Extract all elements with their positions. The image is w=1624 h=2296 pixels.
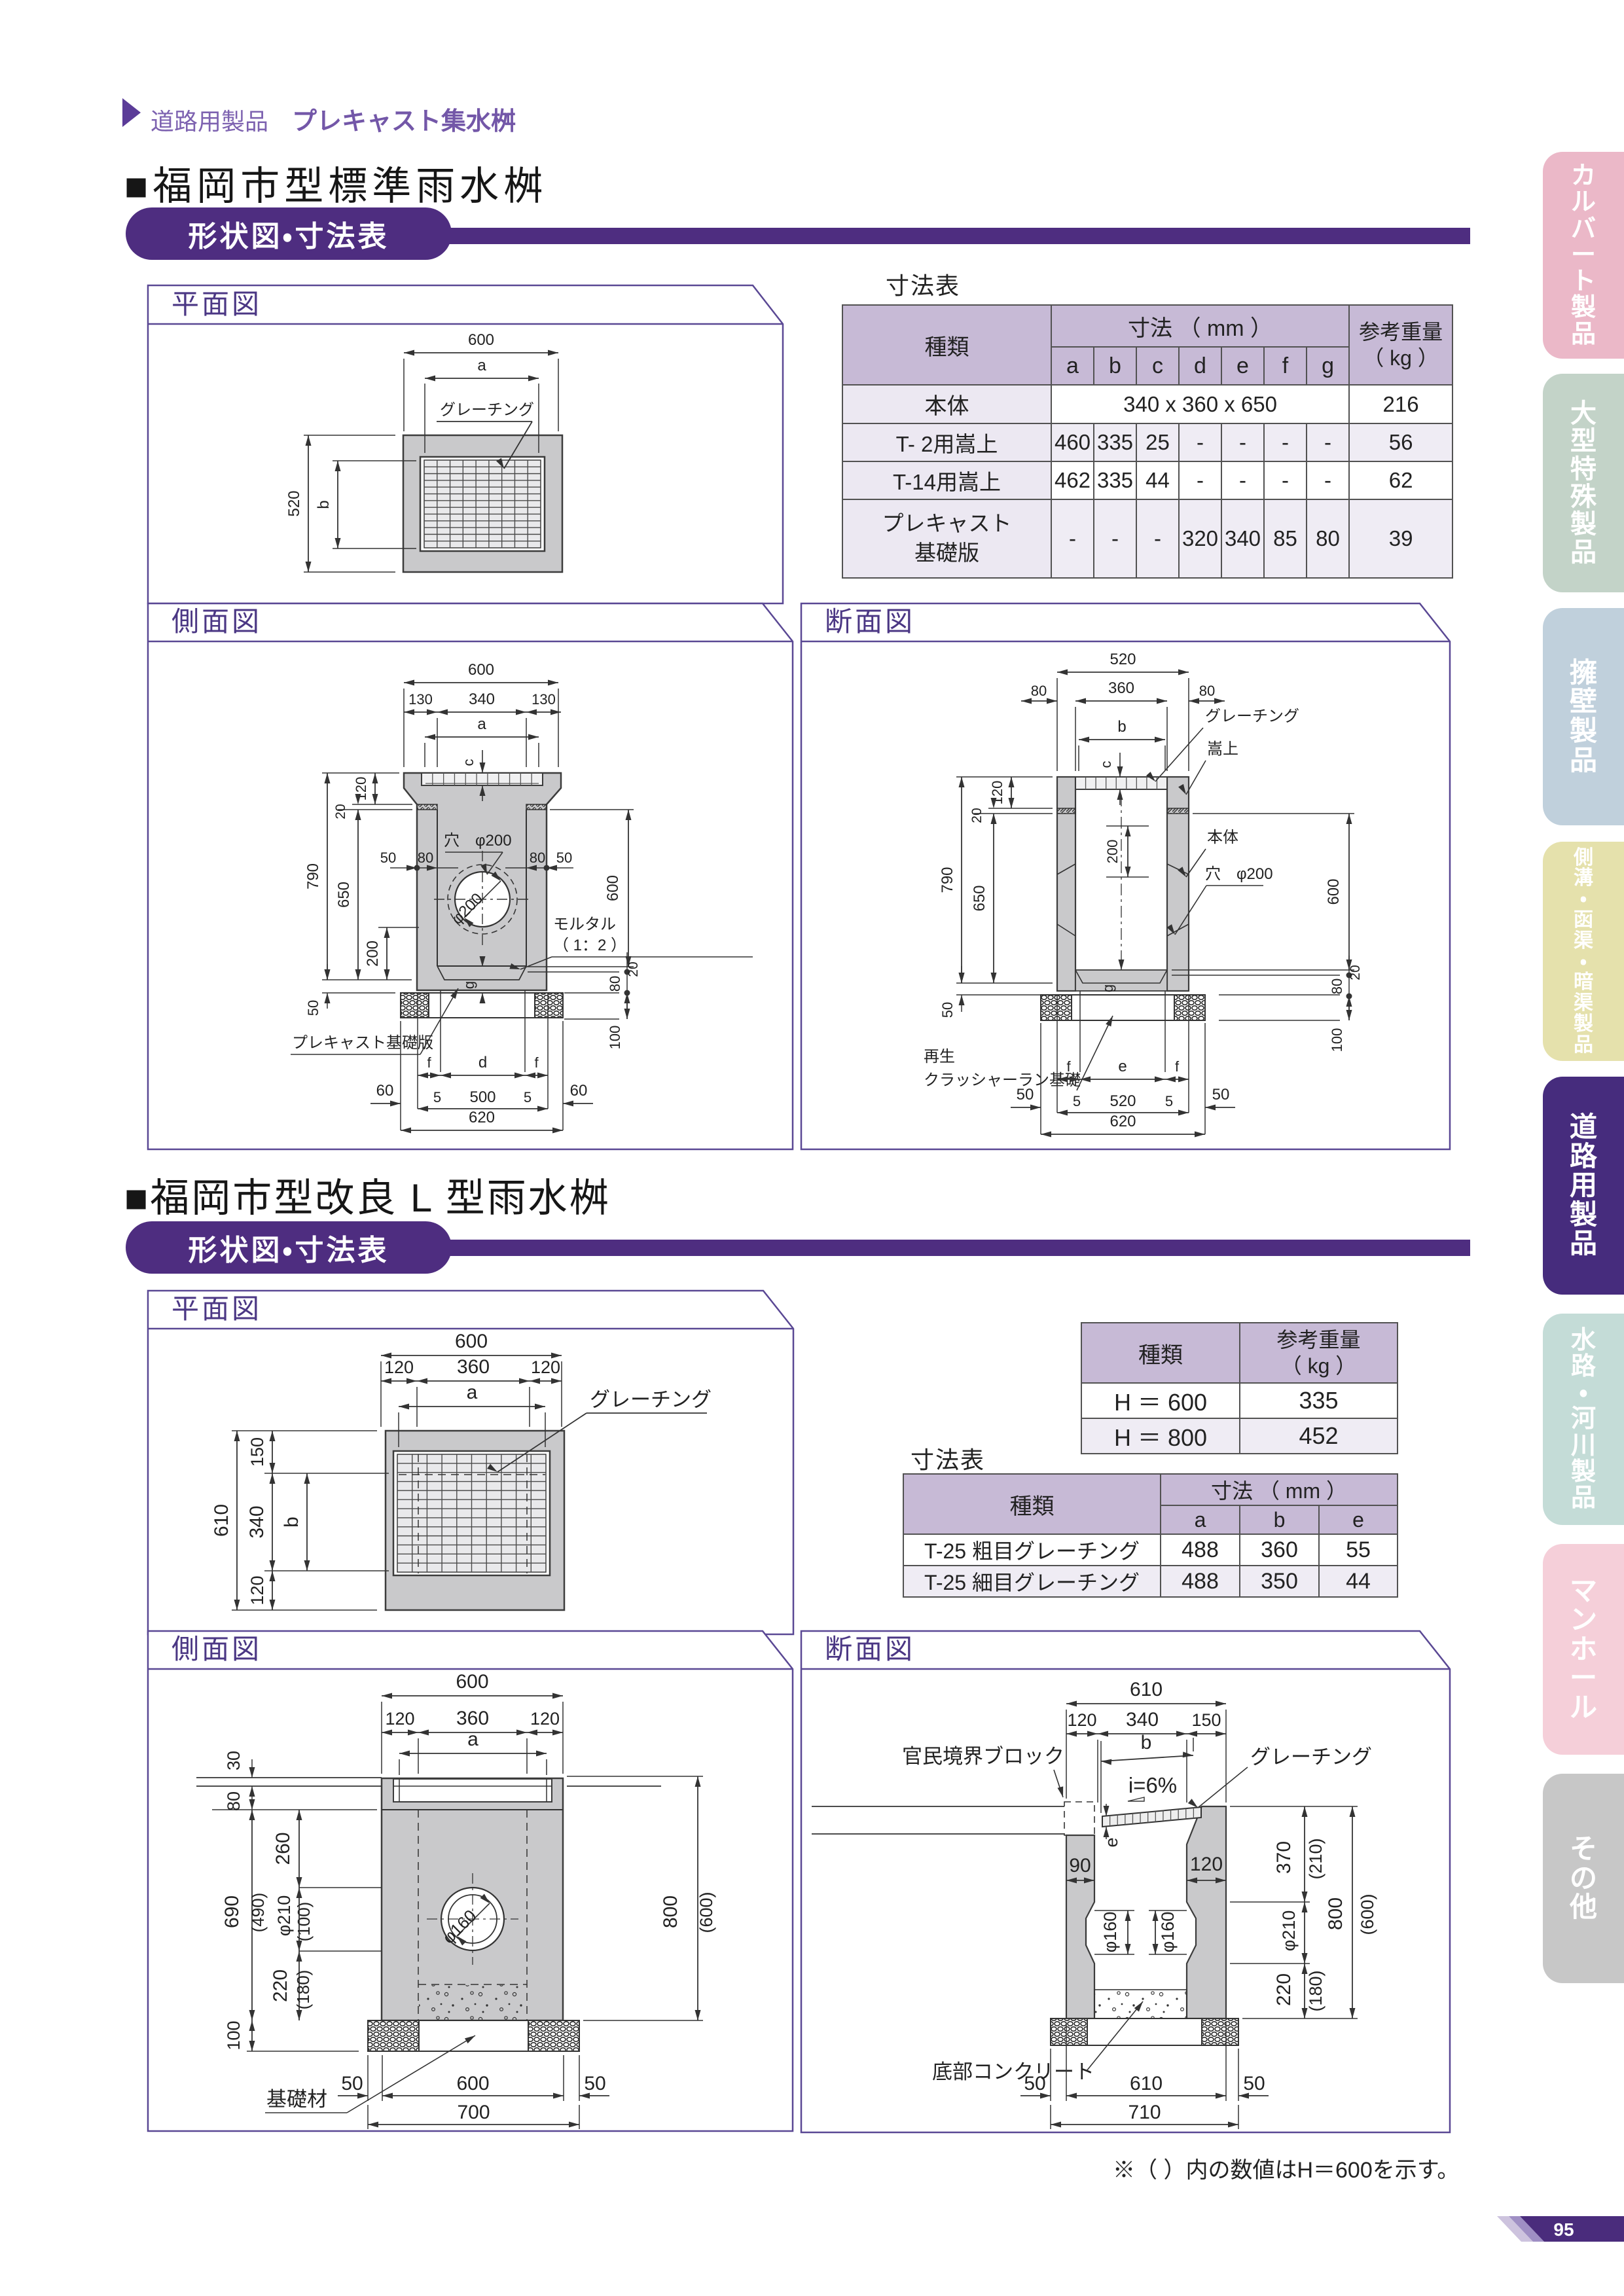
- svg-text:f: f: [1066, 1058, 1071, 1075]
- svg-text:断面図: 断面図: [825, 1634, 915, 1664]
- svg-text:f: f: [534, 1054, 539, 1071]
- svg-text:e: e: [1102, 1837, 1121, 1847]
- svg-text:80: 80: [607, 976, 623, 992]
- svg-text:5: 5: [1073, 1093, 1081, 1109]
- svg-text:e: e: [1118, 1058, 1127, 1075]
- svg-text:i=6%: i=6%: [1128, 1773, 1177, 1797]
- svg-text:50: 50: [556, 850, 572, 866]
- svg-text:150: 150: [1191, 1710, 1221, 1730]
- svg-text:130: 130: [408, 691, 433, 708]
- svg-text:φ160: φ160: [1100, 1912, 1120, 1953]
- svg-text:120: 120: [1067, 1710, 1096, 1730]
- svg-text:600: 600: [604, 875, 622, 901]
- svg-text:基礎材: 基礎材: [266, 2088, 327, 2111]
- svg-text:5: 5: [1165, 1093, 1173, 1109]
- svg-text:側面図: 側面図: [171, 606, 262, 637]
- svg-text:600: 600: [468, 661, 494, 679]
- svg-text:50: 50: [380, 850, 396, 866]
- svg-text:100: 100: [224, 2020, 244, 2050]
- svg-text:c: c: [1098, 761, 1114, 768]
- svg-text:φ160: φ160: [1158, 1912, 1178, 1953]
- svg-text:c: c: [460, 759, 477, 766]
- svg-text:710: 710: [1128, 2102, 1161, 2123]
- svg-text:80: 80: [1031, 683, 1047, 699]
- svg-text:a: a: [467, 1382, 478, 1403]
- svg-text:(600): (600): [696, 1892, 716, 1933]
- svg-text:モルタル: モルタル: [553, 916, 616, 933]
- svg-text:360: 360: [457, 1356, 490, 1378]
- svg-text:340: 340: [469, 691, 495, 708]
- svg-text:500: 500: [469, 1088, 496, 1106]
- svg-text:(490): (490): [248, 1893, 268, 1933]
- svg-text:b: b: [315, 500, 333, 509]
- svg-text:b: b: [1117, 718, 1126, 736]
- svg-text:φ210: φ210: [1279, 1910, 1299, 1952]
- svg-text:120: 120: [247, 1575, 267, 1605]
- svg-text:b: b: [1141, 1732, 1152, 1753]
- svg-text:120: 120: [353, 777, 369, 801]
- svg-text:600: 600: [468, 331, 494, 349]
- svg-text:370: 370: [1273, 1841, 1295, 1874]
- svg-text:50: 50: [1212, 1086, 1230, 1103]
- svg-text:グレーチング: グレーチング: [440, 401, 534, 419]
- svg-text:600: 600: [1325, 878, 1343, 905]
- svg-text:50: 50: [341, 2073, 363, 2094]
- svg-text:520: 520: [1110, 651, 1136, 668]
- svg-text:d: d: [478, 1054, 487, 1071]
- svg-text:g: g: [1100, 984, 1116, 992]
- svg-text:80: 80: [224, 1791, 244, 1811]
- svg-text:f: f: [1175, 1058, 1180, 1075]
- svg-text:60: 60: [570, 1082, 588, 1100]
- svg-text:620: 620: [469, 1109, 495, 1126]
- svg-text:a: a: [467, 1729, 478, 1750]
- svg-text:120: 120: [384, 1357, 414, 1377]
- svg-text:嵩上: 嵩上: [1207, 740, 1238, 758]
- svg-text:610: 610: [1130, 1679, 1163, 1700]
- svg-text:f: f: [427, 1054, 431, 1071]
- svg-text:穴 φ200: 穴 φ200: [444, 832, 512, 850]
- svg-text:官民境界ブロック: 官民境界ブロック: [902, 1745, 1064, 1768]
- svg-text:600: 600: [456, 2073, 489, 2094]
- svg-text:5: 5: [524, 1089, 532, 1105]
- svg-text:150: 150: [247, 1437, 267, 1467]
- svg-text:600: 600: [456, 1671, 488, 1693]
- svg-text:360: 360: [456, 1708, 489, 1729]
- svg-text:700: 700: [457, 2102, 490, 2123]
- svg-text:50: 50: [305, 1000, 321, 1016]
- svg-text:（ 1：2 ）: （ 1：2 ）: [553, 937, 626, 954]
- svg-text:50: 50: [1243, 2073, 1265, 2094]
- svg-text:50: 50: [1024, 2073, 1045, 2094]
- svg-text:95: 95: [1553, 2219, 1574, 2240]
- svg-text:20: 20: [626, 961, 641, 977]
- svg-text:平面図: 平面図: [171, 1293, 262, 1324]
- svg-text:本体: 本体: [1207, 829, 1238, 846]
- svg-text:50: 50: [584, 2073, 605, 2094]
- svg-text:790: 790: [939, 867, 956, 893]
- svg-text:平面図: 平面図: [171, 289, 262, 319]
- svg-text:80: 80: [530, 850, 545, 866]
- svg-text:800: 800: [1325, 1897, 1346, 1930]
- svg-text:側面図: 側面図: [171, 1634, 262, 1664]
- svg-text:30: 30: [224, 1751, 244, 1770]
- svg-text:120: 120: [531, 1357, 560, 1377]
- svg-text:220: 220: [270, 1969, 291, 2002]
- svg-text:100: 100: [607, 1026, 623, 1050]
- svg-text:360: 360: [1108, 679, 1134, 697]
- svg-text:グレーチング: グレーチング: [590, 1388, 712, 1411]
- svg-text:200: 200: [364, 941, 382, 967]
- svg-text:20: 20: [1348, 965, 1363, 980]
- svg-text:790: 790: [304, 863, 322, 889]
- svg-text:260: 260: [272, 1832, 294, 1865]
- svg-text:50: 50: [939, 1002, 956, 1018]
- svg-text:800: 800: [660, 1895, 681, 1928]
- svg-text:340: 340: [246, 1505, 268, 1538]
- svg-text:50: 50: [1017, 1086, 1034, 1103]
- svg-text:a: a: [477, 357, 486, 374]
- svg-text:再生: 再生: [924, 1048, 955, 1066]
- svg-text:20: 20: [333, 804, 348, 819]
- svg-text:610: 610: [211, 1504, 232, 1537]
- svg-text:340: 340: [1126, 1709, 1159, 1731]
- svg-text:610: 610: [1130, 2073, 1163, 2094]
- svg-text:650: 650: [971, 885, 988, 911]
- svg-text:130: 130: [532, 691, 556, 708]
- svg-text:620: 620: [1110, 1113, 1136, 1130]
- svg-text:120: 120: [385, 1709, 414, 1729]
- svg-text:a: a: [477, 715, 486, 733]
- svg-text:グレーチング: グレーチング: [1250, 1746, 1372, 1768]
- svg-text:φ210: φ210: [274, 1895, 294, 1937]
- svg-text:650: 650: [335, 882, 353, 908]
- svg-text:80: 80: [1199, 683, 1215, 699]
- svg-text:200: 200: [1104, 840, 1121, 864]
- svg-text:断面図: 断面図: [825, 606, 915, 637]
- svg-text:(100): (100): [294, 1902, 314, 1942]
- svg-text:(180): (180): [293, 1970, 313, 2010]
- svg-text:(600): (600): [1358, 1893, 1377, 1935]
- svg-text:g: g: [461, 981, 477, 989]
- svg-text:グレーチング: グレーチング: [1205, 708, 1299, 725]
- svg-text:690: 690: [221, 1895, 243, 1928]
- svg-text:520: 520: [285, 490, 303, 516]
- svg-text:(180): (180): [1306, 1970, 1326, 2011]
- svg-text:520: 520: [1110, 1092, 1136, 1110]
- svg-text:80: 80: [1329, 978, 1345, 994]
- svg-text:80: 80: [418, 850, 433, 866]
- svg-text:(210): (210): [1306, 1838, 1326, 1879]
- svg-text:底部コンクリート: 底部コンクリート: [932, 2060, 1094, 2083]
- svg-text:b: b: [281, 1516, 302, 1528]
- svg-text:プレキャスト基礎版: プレキャスト基礎版: [292, 1034, 433, 1052]
- svg-text:120: 120: [989, 781, 1005, 805]
- svg-text:120: 120: [1190, 1854, 1223, 1875]
- svg-text:100: 100: [1329, 1028, 1345, 1052]
- svg-text:120: 120: [530, 1709, 560, 1729]
- svg-text:5: 5: [433, 1089, 441, 1105]
- svg-text:220: 220: [1273, 1973, 1295, 2006]
- svg-text:60: 60: [376, 1082, 394, 1100]
- svg-text:20: 20: [969, 808, 984, 823]
- svg-text:穴 φ200: 穴 φ200: [1205, 865, 1273, 883]
- svg-text:600: 600: [455, 1331, 488, 1352]
- svg-text:90: 90: [1069, 1855, 1091, 1876]
